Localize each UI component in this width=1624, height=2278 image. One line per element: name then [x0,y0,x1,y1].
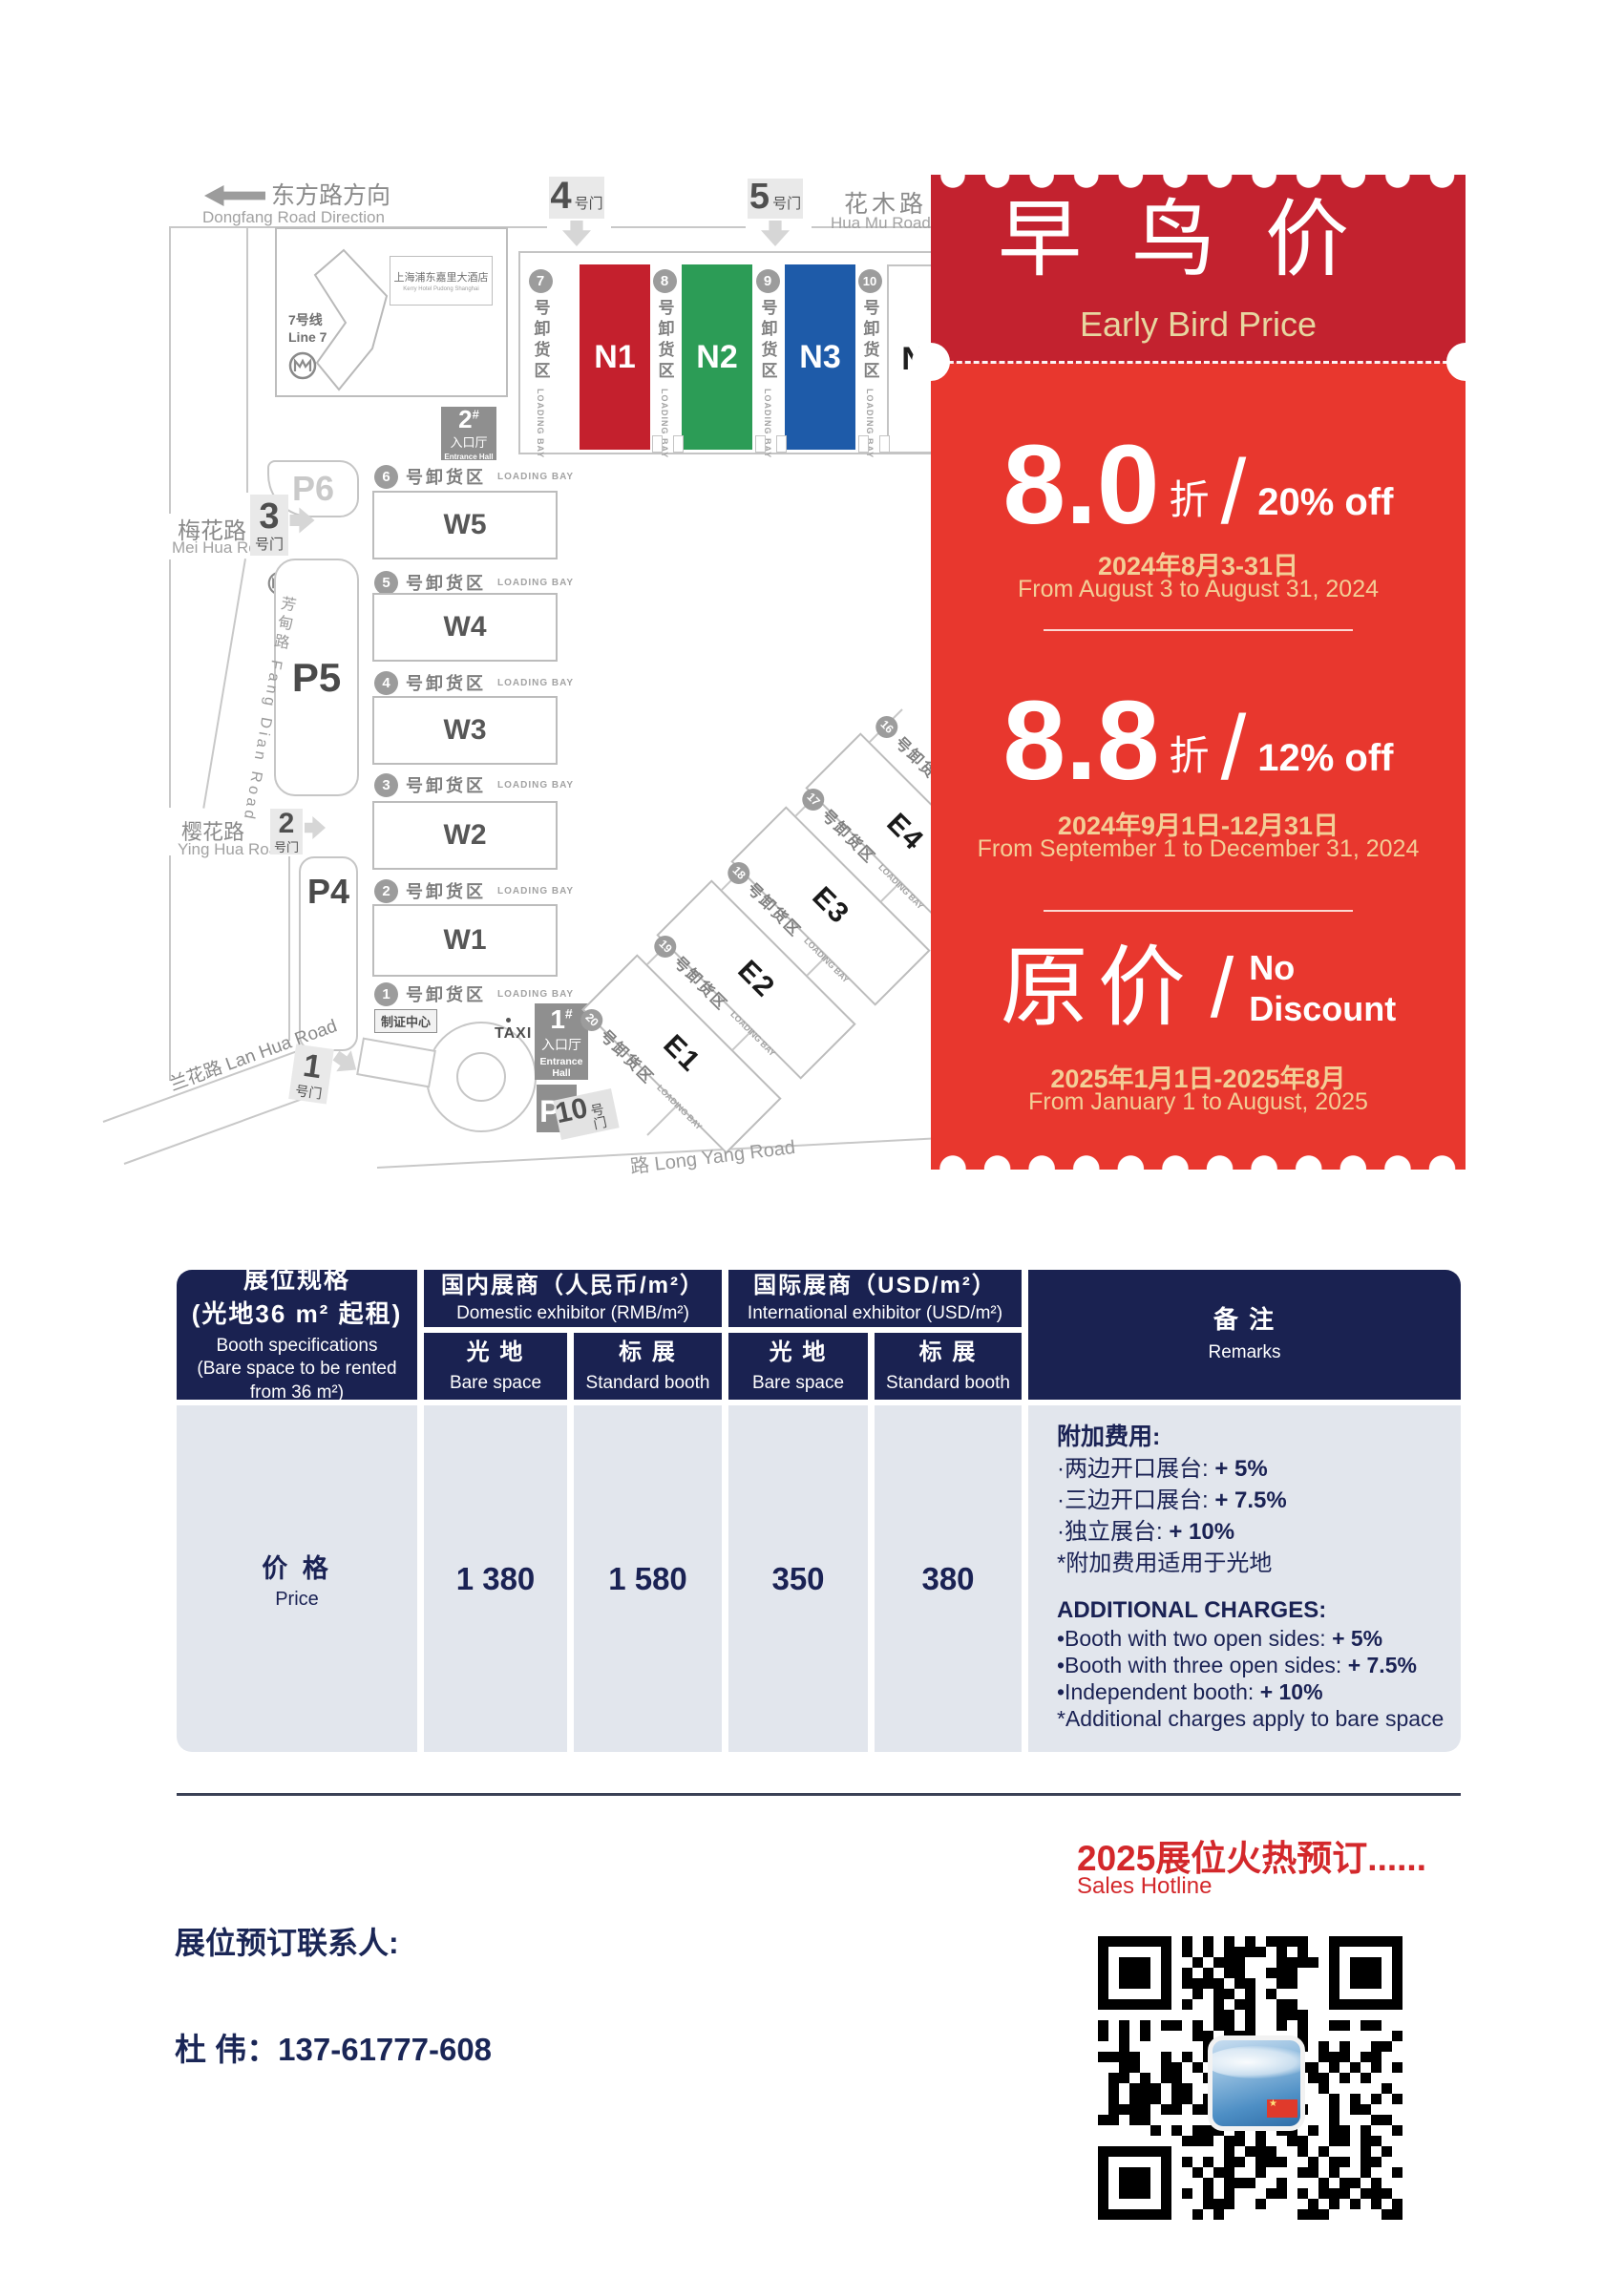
loading-bay-cn: 号卸货区 [756,299,780,383]
hall-door [755,435,766,453]
loading-bay-cn: 号卸货区 [653,299,677,383]
subcol-international-bare: 光 地 Bare space [728,1333,868,1400]
spec-en1: Booth specifications [217,1335,378,1359]
remark-label: ·三边开口展台: [1057,1487,1214,1513]
loading-bay-5: 5 号卸货区 LOADING BAY [374,570,574,595]
road-line [169,559,171,808]
remarks-cell: 附加费用: ·两边开口展台: + 5% ·三边开口展台: + 7.5% ·独立展… [1028,1405,1461,1752]
sales-hotline-en: Sales Hotline [1077,1873,1212,1900]
gate-2-number: 2 [279,810,295,838]
hall-door [652,435,663,453]
gate-2-arrow-icon [305,816,326,839]
loading-bay-9: 9 号卸货区 LOADING BAY [754,269,781,458]
loading-bay-5-number: 5 [374,571,398,595]
international-en: International exhibitor (USD/m²) [748,1302,1002,1326]
price-international-bare: 350 [728,1405,868,1752]
gate-10-label: 号门 [589,1100,619,1131]
gate-4-number: 4 [550,177,571,215]
loading-bay-en: LOADING BAY [536,389,545,458]
tier-1-unit: 折 [1170,468,1210,526]
hall-w4: W4 [372,593,558,662]
entrance-2-num: 2 [458,405,472,433]
loading-bay-en: LOADING BAY [497,989,574,1000]
qr-center-logo: ★ [1208,2035,1305,2131]
hall-door [776,435,787,453]
loading-bay-7: 7 号卸货区 LOADING BAY [527,269,554,458]
spec-en3: from 36 m²) [250,1382,344,1405]
loading-bay-cn: 号卸货区 [406,464,486,489]
subcol-domestic-standard: 标 展 Standard booth [574,1333,722,1400]
value-domestic-standard: 1 580 [608,1561,687,1597]
qr-finder-top-right [1329,1936,1403,2010]
hall-n1: N1 [580,264,650,450]
table-header-remarks: 备 注 Remarks [1028,1270,1461,1400]
contact-label: 展位预订联系人: [175,1919,399,1963]
spec-en2: (Bare space to be rented [197,1358,396,1382]
no-discount-line1: No [1249,947,1396,988]
gate-5: 5 号门 [748,179,803,219]
ticket-scallop-bottom [931,1143,1466,1170]
road-dongfang-cn: 东方路方向 [271,177,390,211]
gate-3-label: 号门 [255,538,284,552]
gate-3: 3 号门 [250,495,288,556]
original-price-cn: 原价 [1001,944,1195,1032]
early-bird-ticket: 早鸟价 Early Bird Price 8.0 折 / 20% off 202… [931,175,1466,1170]
remark-value: + 7.5% [1214,1487,1286,1513]
gate-1-number: 1 [301,1048,323,1083]
tier-1-date-en: From August 3 to August 31, 2024 [931,576,1466,603]
loading-bay-2: 2 号卸货区 LOADING BAY [374,878,574,903]
loading-bay-8: 8 号卸货区 LOADING BAY [651,269,678,458]
remark-line: •Booth with three open sides: + 7.5% [1057,1652,1447,1678]
loading-bay-9-number: 9 [756,269,780,293]
metro-logo-icon [288,351,317,380]
badge-center-label: 制证中心 [374,1009,437,1033]
value-international-bare: 350 [771,1561,824,1597]
hall-w3: W3 [372,696,558,765]
hotel-label: 上海浦东嘉里大酒店 Kerry Hotel Pudong Shanghai [390,256,493,306]
remark-label: *附加费用适用于光地 [1057,1550,1272,1576]
qr-logo-flag-icon: ★ [1267,2099,1297,2118]
entrance-2-cn: 入口厅 [450,436,487,451]
price-label-en: Price [275,1589,319,1611]
loading-bay-1-number: 1 [374,982,398,1006]
remark-label: •Independent booth: [1057,1679,1260,1704]
line7-cn: 7号线 [288,311,327,328]
gate-2-label: 号门 [274,841,299,854]
gate-4: 4 号门 [549,177,604,219]
price-domestic-bare: 1 380 [424,1405,567,1752]
no-discount-line2: Discount [1249,988,1396,1029]
gate-5-number: 5 [749,179,770,215]
loading-bay-en: LOADING BAY [497,780,574,791]
gate-4-label: 号门 [575,197,603,211]
tier-2-date-en: From September 1 to December 31, 2024 [931,835,1466,863]
remark-line: *Additional charges apply to bare space [1057,1705,1447,1732]
table-header-domestic: 国内展商（人民币/m²） Domestic exhibitor (RMB/m²) [424,1270,722,1327]
ticket-divider-2 [1044,910,1353,912]
gate-2: 2 号门 [270,809,303,854]
subcol-en: Standard booth [586,1372,710,1396]
subcol-domestic-bare: 光 地 Bare space [424,1333,567,1400]
parking-p5: P5 [274,559,359,796]
remark-value: + 5% [1214,1456,1267,1482]
remark-line: *附加费用适用于光地 [1057,1548,1447,1579]
loading-bay-6: 6 号卸货区 LOADING BAY [374,464,574,489]
gate-5-label: 号门 [772,197,801,211]
loading-bay-10: 10 号卸货区 LOADING BAY [856,269,883,458]
hall-w5: W5 [372,491,558,559]
taxi-dot [506,1018,511,1023]
value-international-standard: 380 [921,1561,974,1597]
hall-n2: N2 [682,264,752,450]
subcol-cn: 光 地 [770,1338,828,1367]
spec-cn2: (光地36 m² 起租) [192,1298,402,1331]
hotel-name-en: Kerry Hotel Pudong Shanghai [403,286,478,292]
road-line [611,226,746,228]
remark-line: •Independent booth: + 10% [1057,1678,1447,1705]
line7-label: 7号线 Line 7 [288,311,327,346]
domestic-en: Domestic exhibitor (RMB/m²) [456,1302,689,1326]
road-dongfang-en: Dongfang Road Direction [202,208,385,227]
remark-value: + 7.5% [1348,1653,1417,1677]
entrance-1-number: 1# [550,1004,572,1035]
loading-bay-cn: 号卸货区 [406,772,486,797]
tier-1-slash: / [1221,452,1247,534]
loading-bay-cn: 号卸货区 [406,570,486,595]
tier-1-off: 20% off [1257,481,1393,524]
road-line [169,227,171,514]
loading-bay-cn: 号卸货区 [406,981,486,1006]
tier-1: 8.0 折 / 20% off [931,429,1466,536]
no-discount-label: No Discount [1249,947,1396,1029]
gate-10: 10 号门 [553,1088,619,1140]
subcol-cn: 标 展 [619,1338,677,1367]
remark-value: + 5% [1332,1626,1382,1651]
road-line [169,855,171,1081]
subcol-en: Standard booth [886,1372,1010,1396]
tier-2-slash: / [1221,707,1247,790]
hotel-name-cn: 上海浦东嘉里大酒店 [394,269,489,285]
road-line [288,856,290,1041]
parking-p4-label: P4 [307,872,349,912]
tier-2-value: 8.8 [1003,690,1160,791]
remark-label: *Additional charges apply to bare space [1057,1706,1444,1731]
hash-mark: # [565,1006,573,1022]
loading-bay-4-number: 4 [374,671,398,695]
ticket-dashed-divider [931,361,1466,364]
road-line-fangdian [202,559,246,809]
loading-bay-cn: 号卸货区 [858,299,882,383]
remarks-cn: 备 注 [1213,1304,1276,1337]
entrance-2-number: 2# [458,406,479,434]
original-price-row: 原价 / No Discount [931,931,1466,1045]
road-huamu-en: Hua Mu Road [831,214,931,233]
table-header-spec: 展位规格 (光地36 m² 起租) Booth specifications (… [177,1270,417,1400]
loading-bay-en: LOADING BAY [497,886,574,896]
ticket-title-cn: 早鸟价 [931,198,1466,282]
road-line [246,227,248,493]
loading-bay-8-number: 8 [653,269,677,293]
hash-mark: # [473,407,479,421]
hall-w1: W1 [372,904,558,977]
kerry-hotel-block: 上海浦东嘉里大酒店 Kerry Hotel Pudong Shanghai 7号… [275,227,508,397]
remarks-cn-title: 附加费用: [1057,1421,1447,1453]
loading-bay-cn: 号卸货区 [529,299,553,383]
ticket-punch-right [1446,343,1485,381]
subcol-international-standard: 标 展 Standard booth [875,1333,1022,1400]
original-date-en: From January 1 to August, 2025 [931,1088,1466,1116]
entrance-2-en: Entrance Hall [444,453,493,461]
remark-label: •Booth with three open sides: [1057,1653,1348,1677]
hall-door [673,435,684,453]
hall-door [858,435,869,453]
subcol-en: Bare space [752,1372,844,1396]
loading-bay-3-number: 3 [374,773,398,797]
price-label-cn: 价 格 [262,1548,332,1585]
qr-finder-top-left [1098,1936,1171,2010]
loading-bay-cn: 号卸货区 [406,670,486,695]
spec-cn1: 展位规格 [243,1264,350,1297]
tier-1-value: 8.0 [1003,434,1160,536]
table-header-international: 国际展商（USD/m²） International exhibitor (US… [728,1270,1022,1327]
subcol-en: Bare space [450,1372,541,1396]
entrance-1-en2: Hall [552,1067,570,1079]
tier-2-unit: 折 [1170,724,1210,782]
qr-finder-bottom-left [1098,2146,1171,2220]
roundabout-inner [456,1052,506,1102]
remark-value: + 10% [1260,1679,1323,1704]
international-cn: 国际展商（USD/m²） [753,1271,997,1300]
entrance-1-en1: Entrance [540,1056,583,1067]
hall-n3: N3 [785,264,855,450]
gate-4-arrow-icon [562,221,591,246]
remark-line: ·两边开口展台: + 5% [1057,1453,1447,1485]
loading-bay-10-number: 10 [858,269,882,293]
price-domestic-standard: 1 580 [574,1405,722,1752]
gate-1: 1 号门 [288,1044,334,1104]
remarks-en-title: ADDITIONAL CHARGES: [1057,1596,1447,1625]
loading-bay-en: LOADING BAY [497,472,574,482]
roundabout-spur [356,1038,436,1088]
line7-en: Line 7 [288,328,327,346]
remark-line: ·独立展台: + 10% [1057,1516,1447,1548]
remark-label: ·独立展台: [1057,1519,1169,1545]
ticket-title-en: Early Bird Price [931,305,1466,345]
footer-divider [177,1793,1461,1796]
gate-10-number: 10 [553,1094,590,1128]
gate-5-arrow-icon [761,221,790,246]
hall-w2: W2 [372,801,558,870]
remark-value: + 10% [1169,1519,1234,1545]
subcol-cn: 光 地 [467,1338,525,1367]
loading-bay-2-number: 2 [374,879,398,903]
remark-label: ·两边开口展台: [1057,1456,1214,1482]
remark-line: ·三边开口展台: + 7.5% [1057,1485,1447,1516]
entrance-1-cn: 入口厅 [541,1037,581,1052]
tier-2-off: 12% off [1257,737,1393,780]
ticket-punch-left [912,343,950,381]
entrance-hall-2: 2# 入口厅 Entrance Hall [441,407,496,460]
original-price-slash: / [1211,946,1234,1030]
hall-door [879,435,890,453]
ticket-divider-1 [1044,629,1353,631]
value-domestic-bare: 1 380 [456,1561,536,1597]
loading-bay-6-number: 6 [374,465,398,489]
loading-bay-cn: 号卸货区 [406,878,486,903]
price-international-standard: 380 [875,1405,1022,1752]
domestic-cn: 国内展商（人民币/m²） [441,1271,705,1300]
tier-2: 8.8 折 / 12% off [931,685,1466,791]
loading-bay-7-number: 7 [529,269,553,293]
remark-line: •Booth with two open sides: + 5% [1057,1625,1447,1652]
loading-bay-3: 3 号卸货区 LOADING BAY [374,772,574,797]
gate-1-label: 号门 [295,1083,324,1100]
subcol-cn: 标 展 [919,1338,978,1367]
remark-label: •Booth with two open sides: [1057,1626,1332,1651]
row-label-price: 价 格 Price [177,1405,417,1752]
qr-code: ★ [1098,1936,1403,2220]
dongfang-direction-arrow-icon [204,185,265,206]
contact-phone: 杜 伟：137-61777-608 [175,2024,492,2070]
flyer-page: 东方路方向 Dongfang Road Direction 上海浦东嘉里大酒店 … [0,0,1624,2278]
gate-3-number: 3 [259,498,279,535]
loading-bay-en: LOADING BAY [497,678,574,688]
loading-bay-4: 4 号卸货区 LOADING BAY [374,670,574,695]
entrance-1-num: 1 [550,1004,565,1034]
remarks-en: Remarks [1208,1341,1280,1365]
taxi-label: TAXI [495,1025,532,1043]
loading-bay-en: LOADING BAY [497,578,574,588]
